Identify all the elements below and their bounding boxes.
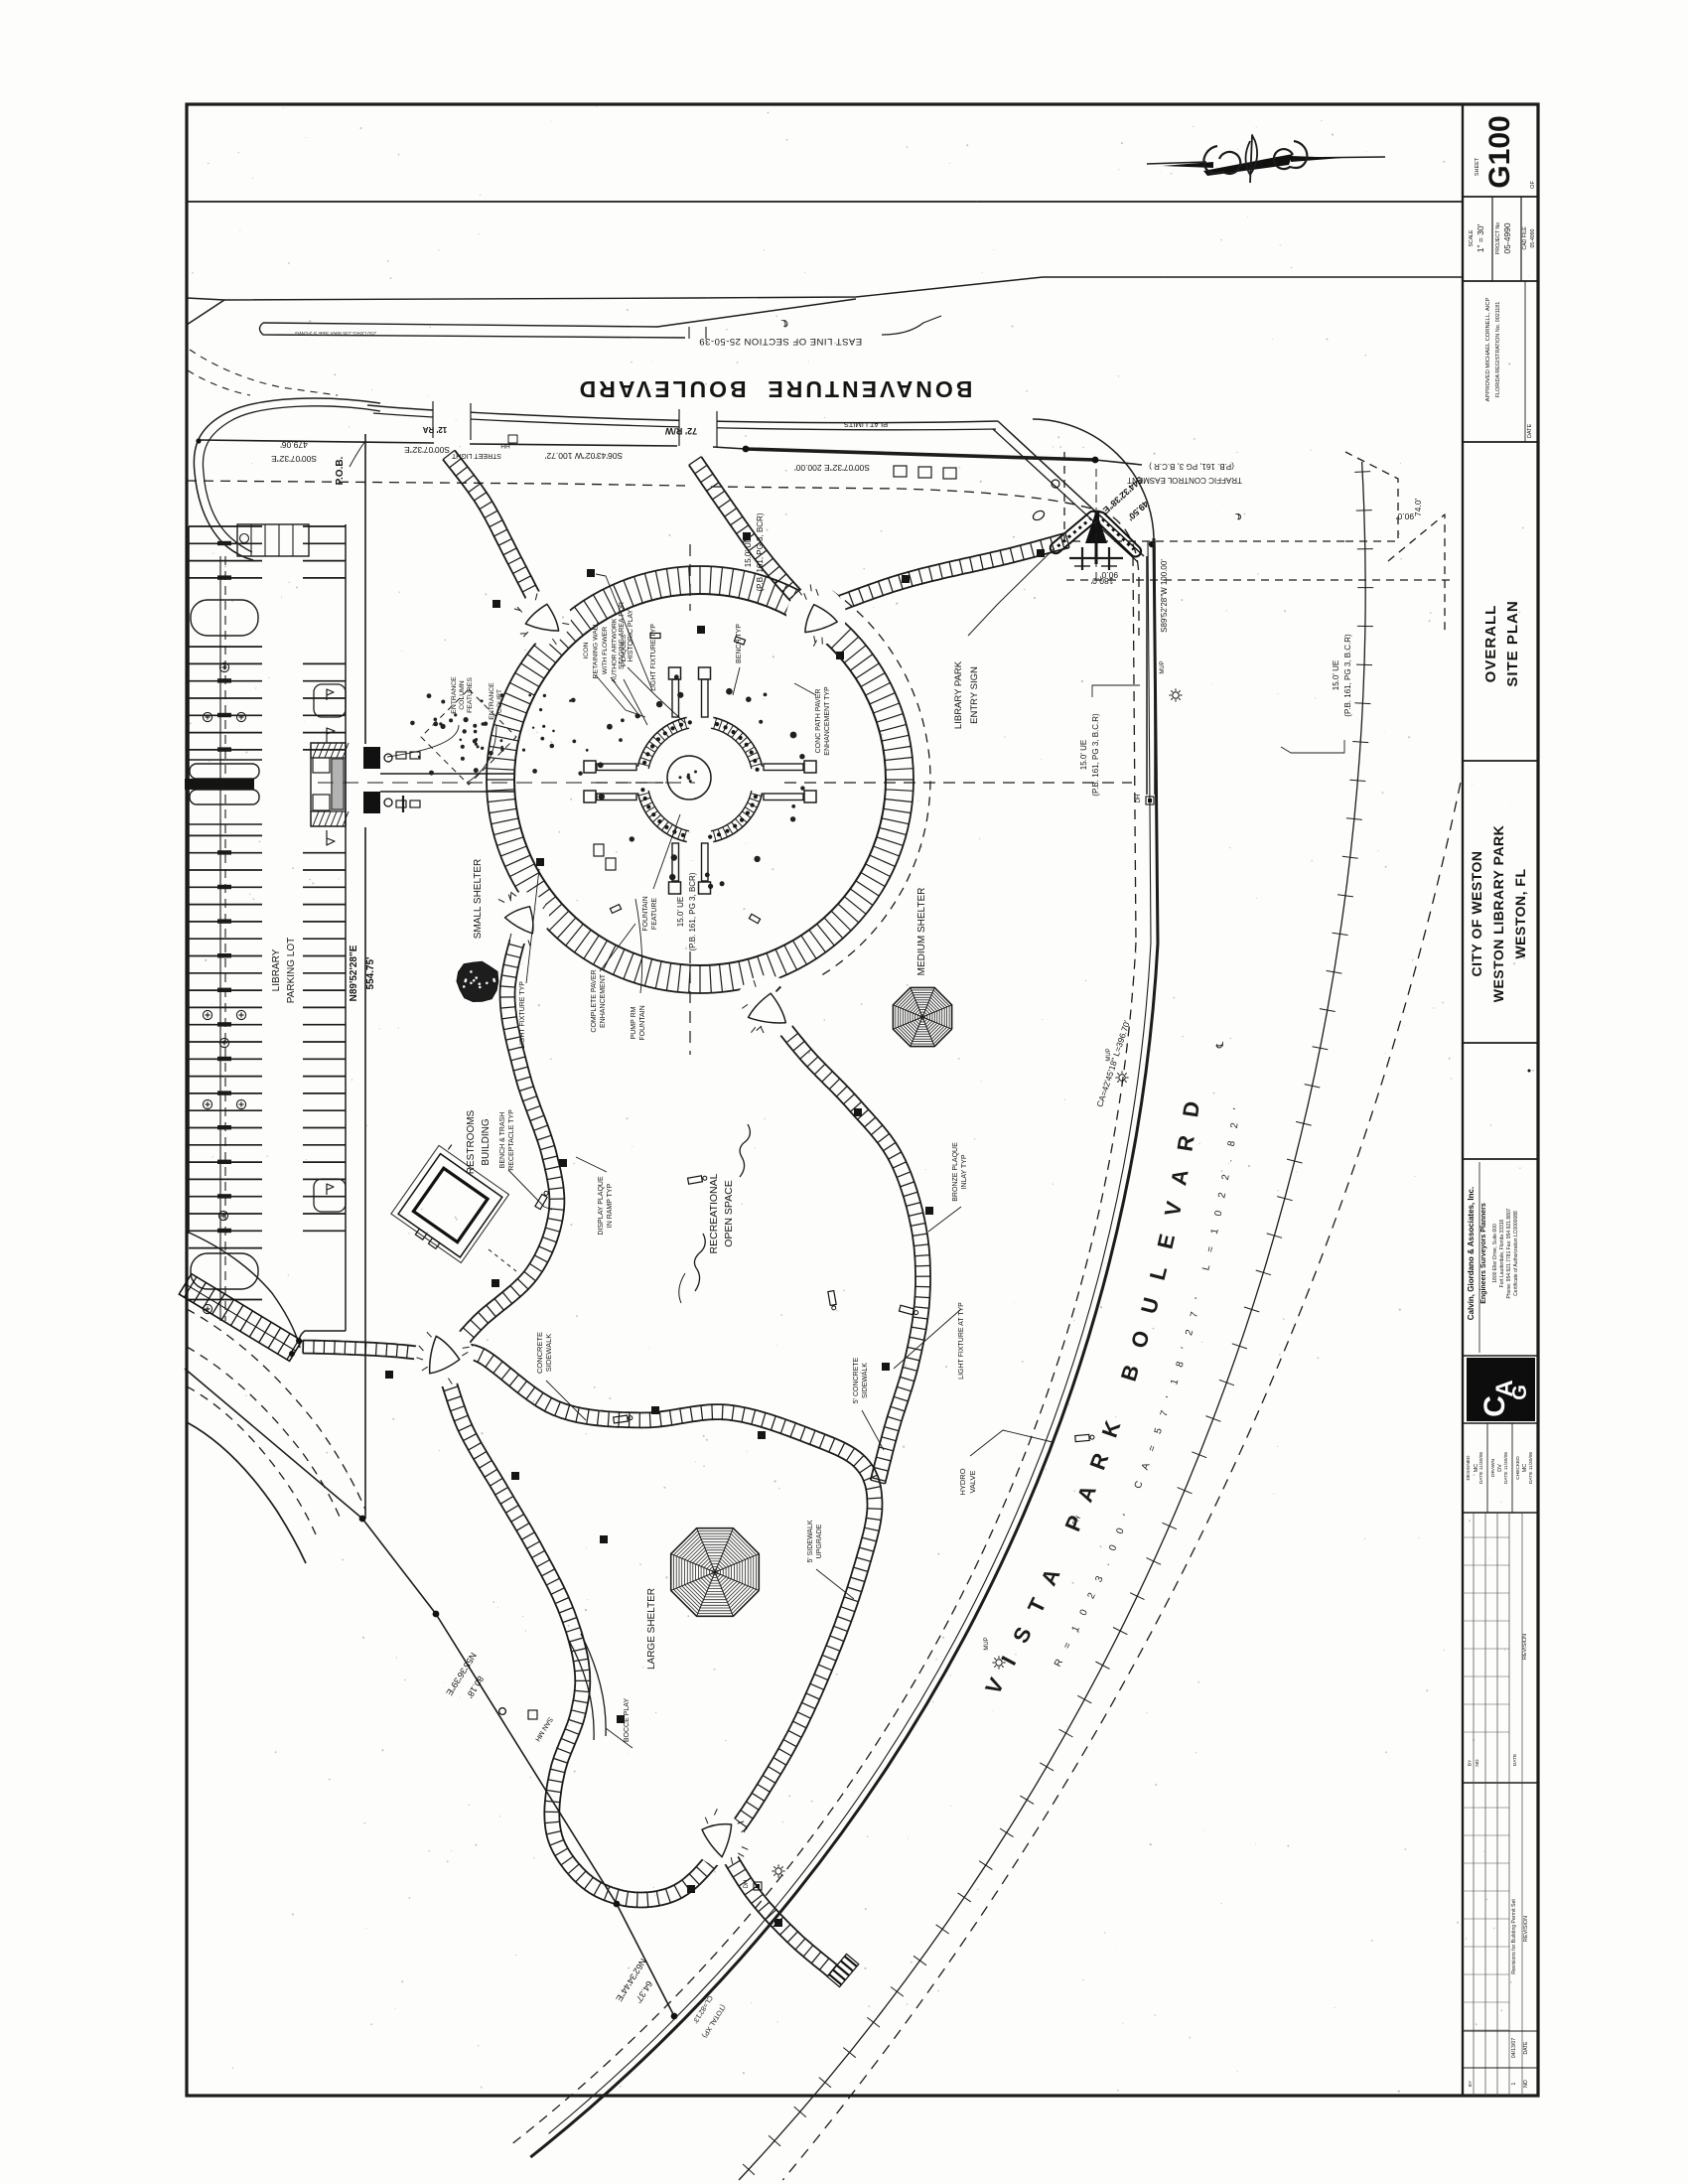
svg-text:S00'07'32"E: S00'07'32"E [404,445,450,455]
svg-text:WITH FLOWER: WITH FLOWER [602,627,609,674]
svg-text:SIDEWALK: SIDEWALK [544,1334,553,1372]
svg-text:FOUNTAIN: FOUNTAIN [642,896,649,931]
svg-text:ICON: ICON [583,642,590,658]
svg-text:(P.B. 161, PG 3, BCR): (P.B. 161, PG 3, BCR) [756,512,765,591]
svg-text:12' RA: 12' RA [422,425,447,434]
svg-text:DESIGNED: DESIGNED [1466,1455,1472,1481]
svg-text:SIDEWALK: SIDEWALK [862,1363,869,1398]
svg-text:DRAWN: DRAWN [1490,1458,1496,1476]
svg-text:FEATURES: FEATURES [467,677,474,713]
svg-text:DATE 11/30/06: DATE 11/30/06 [1478,1452,1484,1484]
svg-text:CITY OF WESTON: CITY OF WESTON [1469,850,1484,976]
svg-text:BENCH TYP: BENCH TYP [736,624,743,663]
svg-text:MUP: MUP [1160,660,1166,673]
svg-text:MUP: MUP [1106,1048,1112,1061]
svg-text:DATE: DATE [1512,1754,1518,1766]
svg-text:BY: BY [1468,2081,1473,2087]
svg-text:RETAINING WALL: RETAINING WALL [593,622,600,678]
svg-text:BRONZE PLAQUE: BRONZE PLAQUE [952,1142,959,1202]
svg-text:PUMP RM: PUMP RM [631,1006,637,1039]
svg-text:(P.B. 161, PG 3, B.C.R): (P.B. 161, PG 3, B.C.R) [1091,713,1100,797]
svg-text:DISPLAY PLAQUE: DISPLAY PLAQUE [598,1176,605,1236]
svg-text:PLAQUES: PLAQUES [621,634,628,666]
svg-text:OF: OF [1530,181,1536,189]
svg-text:04/13/07: 04/13/07 [1511,2038,1517,2058]
svg-text:MEDIUM SHELTER: MEDIUM SHELTER [916,888,927,976]
svg-text:15.0' UE: 15.0' UE [676,897,685,927]
svg-text:P.O.B.: P.O.B. [335,456,346,485]
svg-text:S00'07'32"E 200.00': S00'07'32"E 200.00' [794,463,870,473]
svg-text:NO: NO [1523,2080,1529,2088]
svg-text:APPROVED MICHAEL CORNELL, AIC: APPROVED MICHAEL CORNELL, AICP [1485,297,1491,401]
svg-text:(P.B. 161, PG 3, B.C.R ): (P.B. 161, PG 3, B.C.R ) [1149,462,1234,471]
svg-text:IN RAMP TYP: IN RAMP TYP [607,1183,614,1228]
svg-text:DATE 11/30/06: DATE 11/30/06 [1528,1452,1534,1484]
svg-text:COMPLETE PAVER: COMPLETE PAVER [591,969,598,1032]
svg-text:REVISION: REVISION [1522,1634,1528,1660]
svg-text:MC: MC [1522,1464,1528,1473]
svg-text:RESTROOMS: RESTROOMS [466,1109,477,1174]
svg-text:INLAY TYP: INLAY TYP [961,1154,968,1189]
svg-text:LIBRARY: LIBRARY [271,948,282,991]
svg-text:S00'07'32"E: S00'07'32"E [271,454,317,464]
svg-text:Certificate of Authorization: Certificate of Authorization LC0000088 [1513,1211,1519,1296]
svg-text:AUTHOR ARTWORK: AUTHOR ARTWORK [612,618,619,682]
svg-text:90.0': 90.0' [1100,570,1119,580]
svg-text:1" = 30': 1" = 30' [1476,223,1485,252]
svg-text:SITE PLAN: SITE PLAN [1504,600,1521,686]
svg-text:Engineers Surveyors Planners: Engineers Surveyors Planners [1480,1203,1487,1304]
svg-text:CHECKED: CHECKED [1515,1456,1521,1480]
svg-text:SMALL SHELTER: SMALL SHELTER [473,859,484,940]
svg-text:5' CONCRETE: 5' CONCRETE [853,1357,860,1403]
svg-text:74.0': 74.0' [1413,499,1423,517]
svg-text:LIBRARY PARK: LIBRARY PARK [953,660,964,729]
svg-text:ENTRANCE: ENTRANCE [489,682,495,720]
svg-text:LIGHT FIXTURE AT TYP: LIGHT FIXTURE AT TYP [958,1302,965,1380]
svg-text:EAST LINE OF SECTION 25-50-39: EAST LINE OF SECTION 25-50-39 [699,336,862,347]
svg-text:S89'52'28"W 100.00': S89'52'28"W 100.00' [1160,559,1169,633]
svg-text:BOCCE PLAY: BOCCE PLAY [624,1698,631,1743]
svg-text:479.06': 479.06' [280,440,308,450]
svg-text:NO: NO [1475,1759,1480,1766]
svg-text:WESTON, FL: WESTON, FL [1512,868,1528,958]
svg-text:CAD FILE: CAD FILE [1522,226,1528,250]
svg-text:WESTON LIBRARY PARK: WESTON LIBRARY PARK [1490,825,1506,1003]
svg-text:DATE: DATE [1527,424,1533,439]
svg-text:PARKING LOT: PARKING LOT [286,938,297,1004]
svg-text:℄: ℄ [1235,511,1242,521]
svg-text:Fort Lauderdale, Florida 3331: Fort Lauderdale, Florida 33316 [1499,1219,1505,1287]
svg-text:SHEET: SHEET [1475,157,1480,176]
svg-text:COLUMN: COLUMN [459,680,466,710]
svg-text:℄: ℄ [1215,1041,1226,1049]
svg-text:C: C [1478,1395,1511,1417]
svg-text:G: G [1509,1384,1531,1400]
svg-text:15.0' UE: 15.0' UE [744,537,753,567]
svg-text:RECEPTACLE TYP: RECEPTACLE TYP [508,1109,515,1171]
svg-text:BENCH & TRASH: BENCH & TRASH [499,1112,506,1169]
svg-text:ENHANCEMENT: ENHANCEMENT [600,973,607,1028]
svg-text:MUP: MUP [984,1637,990,1650]
svg-text:DATE: DATE [1523,2041,1529,2055]
svg-text:VALVE: VALVE [968,1470,977,1493]
svg-text:554.75': 554.75' [365,957,376,990]
svg-text:DATE 11/30/06: DATE 11/30/06 [1503,1452,1509,1484]
svg-text:BY: BY [1468,1759,1474,1766]
svg-text:℄: ℄ [780,317,788,328]
svg-text:ENTRY SIGN: ENTRY SIGN [969,666,980,724]
svg-text:HISTORIC PLAY: HISTORIC PLAY [628,609,634,661]
svg-text:CONC PATH PAVER: CONC PATH PAVER [815,689,822,754]
svg-text:ENTRANCE: ENTRANCE [451,676,458,714]
svg-text:LIGHT FIXTURE TYP: LIGHT FIXTURE TYP [650,624,657,691]
svg-text:FLORIDA REGISTRATION No. 002: FLORIDA REGISTRATION No. 0021181 [1495,302,1501,398]
svg-text:05-4990: 05-4990 [1502,222,1512,253]
svg-text:PROJECT No: PROJECT No [1495,222,1501,254]
svg-text:BONAVENTURE BOULEVARD: BONAVENTURE BOULEVARD [577,376,973,402]
svg-text:DV: DV [1497,1464,1503,1472]
svg-text:RECREATIONAL: RECREATIONAL [708,1173,720,1253]
svg-text:(P.B. 161, PG 3, B.C.R): (P.B. 161, PG 3, B.C.R) [1343,634,1352,717]
svg-text:15.0' UE: 15.0' UE [1332,660,1340,690]
svg-text:05-4990: 05-4990 [1530,228,1536,247]
svg-text:DH: DH [1136,795,1142,803]
svg-text:Phone: 954.921.7781 Fax: 954.: Phone: 954.921.7781 Fax: 954.921.8807 [1506,1208,1512,1298]
svg-text:FEATURE: FEATURE [651,898,658,930]
svg-text:5' SIDEWALK: 5' SIDEWALK [807,1520,814,1562]
svg-text:LARGE SHELTER: LARGE SHELTER [646,1588,657,1670]
svg-text:N89'52'28"E: N89'52'28"E [349,945,359,1001]
svg-text:(P.B. 161, PG 3, BCR): (P.B. 161, PG 3, BCR) [688,872,697,950]
svg-text:HYDRO: HYDRO [958,1468,967,1495]
svg-text:BUILDING: BUILDING [481,1118,492,1165]
svg-text:S06'43'02"W 100.72': S06'43'02"W 100.72' [544,451,623,461]
svg-text:UPGRADE: UPGRADE [816,1524,823,1558]
svg-text:15.0' UE: 15.0' UE [1079,740,1088,770]
svg-text:OPEN SPACE: OPEN SPACE [723,1180,735,1247]
svg-text:DH: DH [744,1880,750,1889]
svg-text:90.0': 90.0' [1396,511,1415,521]
svg-text:CONCRETE: CONCRETE [535,1332,544,1374]
svg-text:FOUNTAIN: FOUNTAIN [639,1005,646,1040]
svg-text:REVISION: REVISION [1523,1916,1529,1942]
svg-text:1: 1 [1511,2082,1517,2085]
svg-text:SCALE: SCALE [1469,229,1475,247]
svg-text:OVERALL: OVERALL [1482,605,1499,683]
svg-text:250 LBRS 236 MAX SEE S 3-DWG: 250 LBRS 236 MAX SEE S 3-DWG [295,330,376,336]
svg-text:1800 Eller Drive, Suite 600: 1800 Eller Drive, Suite 600 [1492,1224,1498,1283]
svg-text:Calvin, Giordano & Associates,: Calvin, Giordano & Associates, Inc. [1467,1187,1476,1320]
svg-text:PLAT LIMITS: PLAT LIMITS [844,420,888,429]
svg-text:G100: G100 [1483,115,1516,188]
svg-text:72' R/W: 72' R/W [664,426,697,436]
svg-text:LIGHT FIXTURE TYP: LIGHT FIXTURE TYP [519,981,526,1049]
svg-text:ENHANCEMENT TYP: ENHANCEMENT TYP [824,686,831,756]
svg-text:Revisions for Building Permit: Revisions for Building Permit Set [1511,1899,1517,1974]
